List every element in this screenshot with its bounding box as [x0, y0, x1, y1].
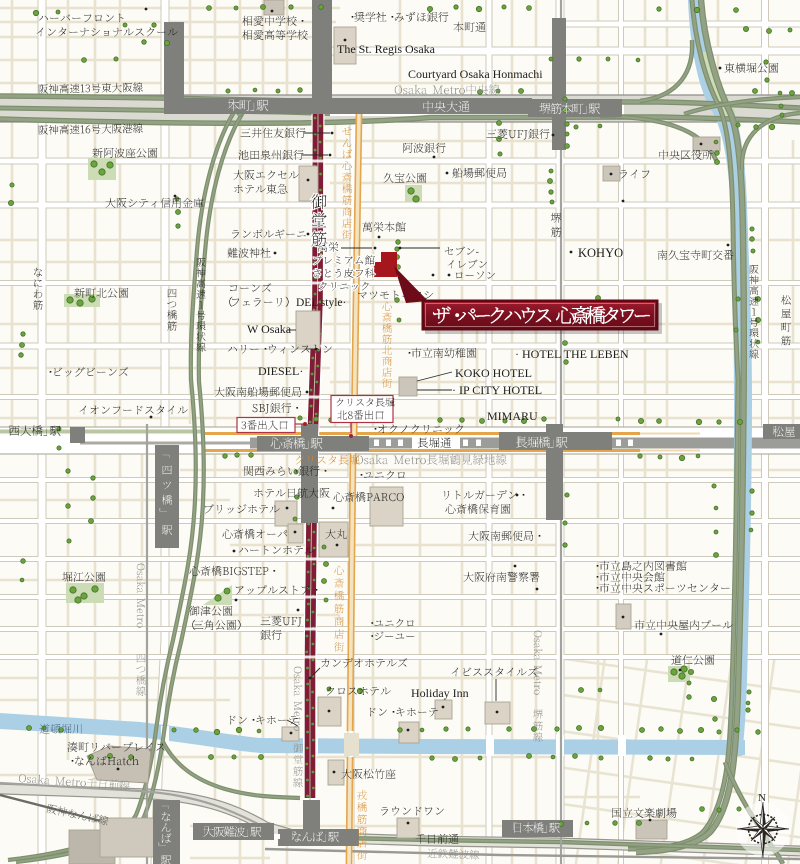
svg-text:· HOTEL THE LEBEN: · HOTEL THE LEBEN — [515, 347, 629, 361]
svg-text:N: N — [758, 792, 766, 804]
svg-text:Holiday Inn: Holiday Inn — [411, 686, 469, 700]
svg-text:· IP CITY HOTEL: · IP CITY HOTEL — [452, 383, 542, 397]
svg-text:W Osaka: W Osaka — [247, 322, 292, 336]
svg-text:Courtyard Osaka Honmachi: Courtyard Osaka Honmachi — [408, 67, 543, 81]
svg-text:KOKO HOTEL: KOKO HOTEL — [455, 366, 532, 380]
svg-text:The St. Regis Osaka: The St. Regis Osaka — [337, 42, 436, 56]
svg-text:DEL style·: DEL style· — [296, 297, 346, 309]
svg-text:MIMARU: MIMARU — [487, 409, 538, 423]
svg-text:DIESEL·: DIESEL· — [258, 364, 303, 378]
svg-text:KOHYO: KOHYO — [578, 246, 623, 260]
